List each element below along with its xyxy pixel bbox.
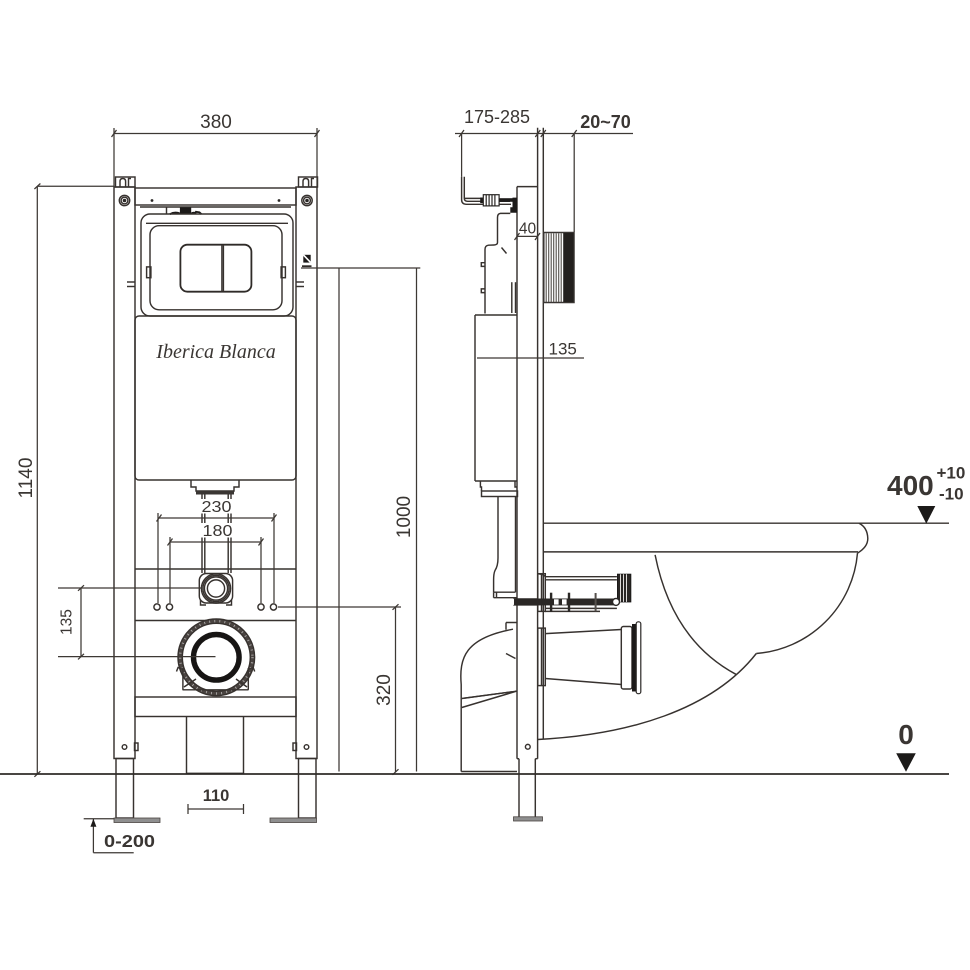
svg-text:Iberica Blanca: Iberica Blanca xyxy=(155,341,275,363)
svg-text:0: 0 xyxy=(898,719,914,750)
svg-text:-10: -10 xyxy=(939,485,964,504)
svg-text:180: 180 xyxy=(203,523,233,540)
svg-text:0-200: 0-200 xyxy=(104,831,155,851)
svg-text:320: 320 xyxy=(374,674,395,706)
svg-text:110: 110 xyxy=(203,787,230,805)
svg-text:1140: 1140 xyxy=(16,458,37,499)
svg-text:230: 230 xyxy=(202,499,232,516)
svg-text:40: 40 xyxy=(519,221,537,238)
svg-text:+10: +10 xyxy=(937,464,966,483)
svg-text:380: 380 xyxy=(200,112,232,133)
svg-text:20~70: 20~70 xyxy=(580,112,631,132)
svg-text:135: 135 xyxy=(549,340,577,359)
svg-text:135: 135 xyxy=(59,609,76,635)
svg-text:1000: 1000 xyxy=(394,496,415,538)
svg-text:175-285: 175-285 xyxy=(464,107,530,127)
svg-text:400: 400 xyxy=(887,470,934,501)
